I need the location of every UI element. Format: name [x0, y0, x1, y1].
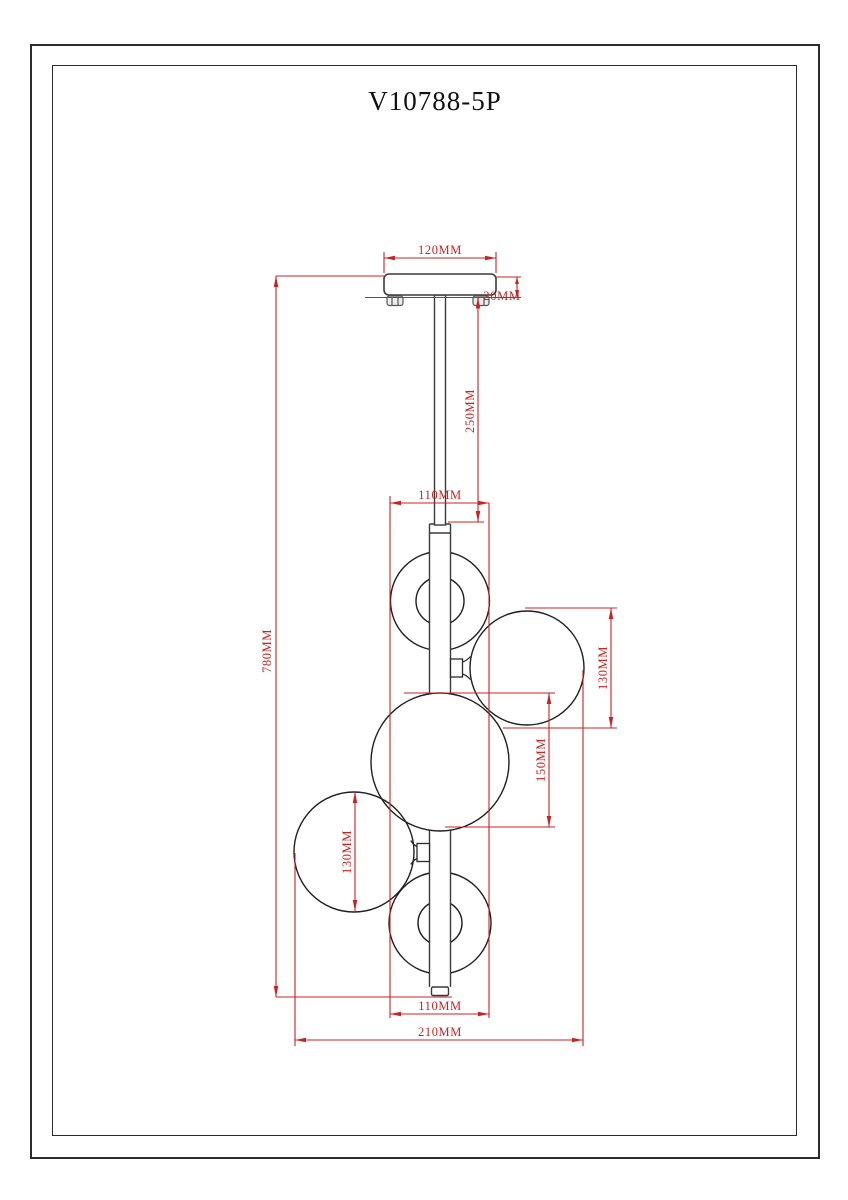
globe-upper-right	[470, 611, 584, 725]
dimension-label-bottom-globe-width: 110MM	[418, 999, 462, 1013]
stem-tube	[430, 524, 451, 987]
dimension-label-upper-right-globe: 130MM	[596, 646, 610, 690]
globe-lower-left	[294, 792, 414, 912]
spec-sheet-page: V10788-5P	[0, 0, 848, 1200]
dimension-label-overall-drop: 780MM	[260, 629, 274, 673]
dimension-label-canopy-thickness: 20MM	[483, 289, 520, 303]
dimension-label-center-globe: 150MM	[534, 738, 548, 782]
dimension-label-overall-width: 210MM	[418, 1025, 462, 1039]
globe-center	[371, 693, 509, 831]
dimension-center-globe	[404, 693, 555, 827]
dimension-label-canopy-width: 120MM	[418, 243, 462, 257]
dimension-label-lower-left-globe: 130MM	[340, 830, 354, 874]
dimension-label-stem-length: 250MM	[463, 389, 477, 433]
tube-end-cap	[432, 987, 449, 996]
socket-right	[451, 657, 471, 680]
dimension-label-top-globe-width: 110MM	[418, 488, 462, 502]
ceiling-canopy	[384, 274, 496, 295]
dimension-overall-drop	[276, 276, 452, 997]
technical-drawing: 120MM 20MM 250MM 110MM 130MM 150MM 130MM…	[0, 0, 848, 1200]
